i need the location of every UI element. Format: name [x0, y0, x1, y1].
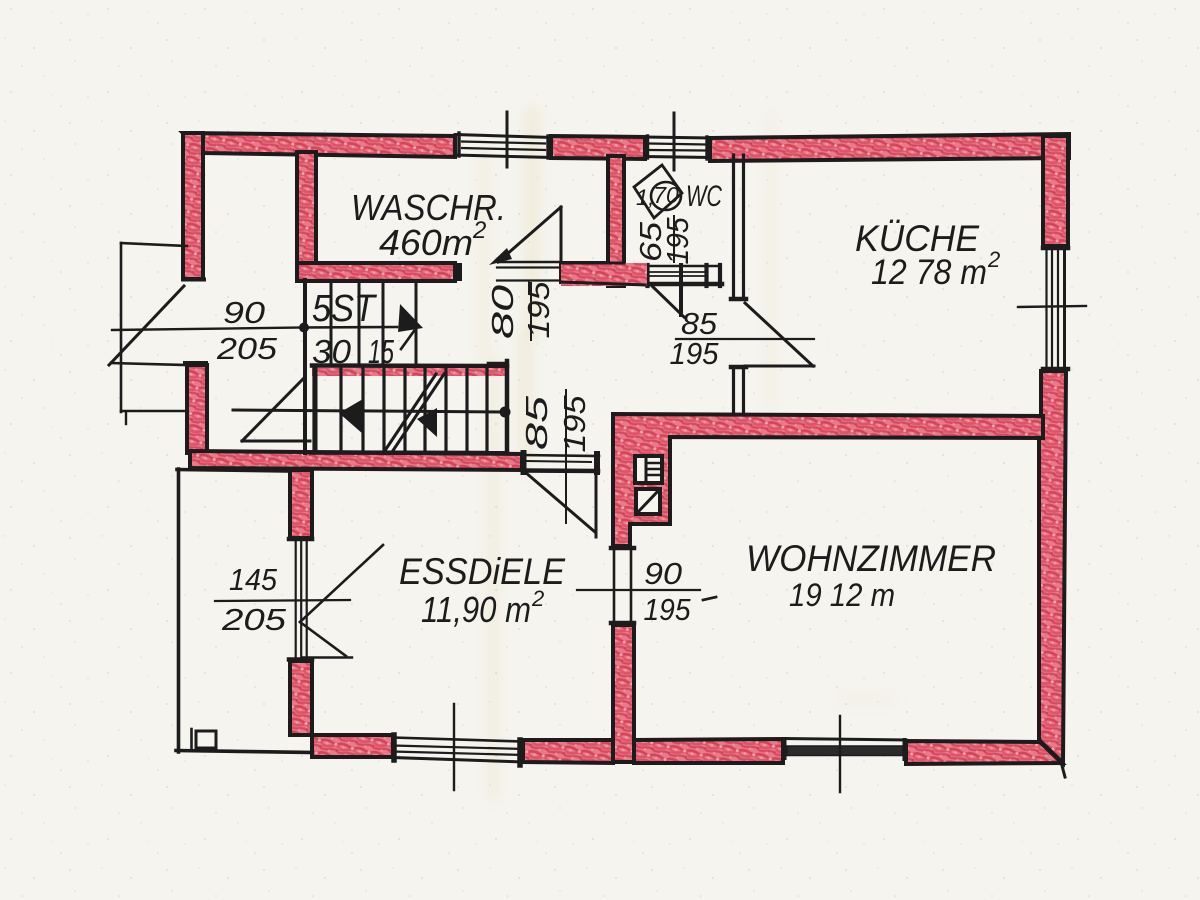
svg-text:19 12 m: 19 12 m	[789, 577, 895, 613]
svg-text:70: 70	[653, 182, 679, 208]
svg-text:WOHNZIMMER: WOHNZIMMER	[746, 538, 996, 579]
svg-text:195: 195	[557, 395, 592, 453]
svg-text:11,90 m: 11,90 m	[421, 589, 531, 630]
svg-text:195: 195	[670, 336, 720, 371]
svg-text:2: 2	[987, 247, 1000, 272]
svg-text:12 78 m: 12 78 m	[871, 253, 987, 292]
svg-text:WC: WC	[686, 180, 722, 213]
svg-text:5ST: 5ST	[312, 288, 378, 330]
svg-text:2: 2	[472, 217, 486, 244]
svg-text:205: 205	[216, 331, 278, 366]
svg-text:1,: 1,	[636, 185, 654, 210]
svg-text:80: 80	[485, 285, 520, 339]
svg-text:460m: 460m	[379, 222, 473, 263]
svg-text:90: 90	[644, 556, 682, 591]
svg-text:195: 195	[644, 592, 692, 627]
svg-text:2: 2	[531, 586, 544, 611]
svg-text:85: 85	[519, 395, 554, 450]
svg-text:145: 145	[229, 562, 278, 597]
svg-text:195: 195	[660, 217, 695, 265]
svg-text:90: 90	[223, 295, 265, 330]
svg-text:205: 205	[221, 602, 287, 637]
svg-text:195: 195	[521, 281, 556, 339]
